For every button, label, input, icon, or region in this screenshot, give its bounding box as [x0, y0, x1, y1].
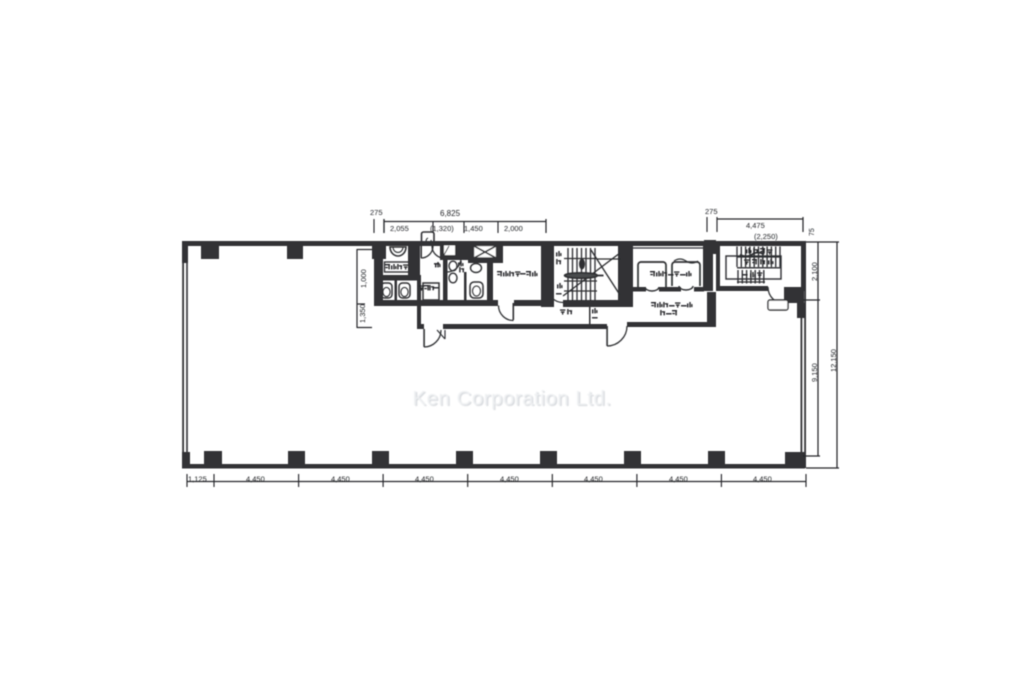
svg-text:4,450: 4,450: [753, 475, 772, 484]
svg-text:1,125: 1,125: [188, 475, 207, 484]
svg-text:275: 275: [370, 208, 383, 217]
svg-text:275: 275: [705, 207, 718, 216]
svg-text:75: 75: [809, 228, 816, 236]
svg-text:2,000: 2,000: [504, 224, 523, 233]
svg-text:4,450: 4,450: [415, 475, 434, 484]
svg-text:4,450: 4,450: [246, 475, 265, 484]
svg-text:4,450: 4,450: [669, 475, 688, 484]
svg-text:2,055: 2,055: [390, 224, 409, 233]
svg-text:4,450: 4,450: [584, 475, 603, 484]
svg-text:1,000: 1,000: [359, 269, 368, 288]
svg-text:4,450: 4,450: [331, 475, 350, 484]
svg-text:1,450: 1,450: [464, 224, 483, 233]
svg-text:(1,320): (1,320): [430, 224, 454, 233]
svg-text:4,450: 4,450: [500, 475, 519, 484]
svg-text:4,475: 4,475: [746, 221, 765, 230]
svg-text:(2,250): (2,250): [754, 232, 778, 241]
svg-text:6,825: 6,825: [440, 209, 461, 218]
svg-text:1,350: 1,350: [358, 304, 367, 323]
svg-text:Ken Corporation Ltd.: Ken Corporation Ltd.: [412, 387, 611, 410]
